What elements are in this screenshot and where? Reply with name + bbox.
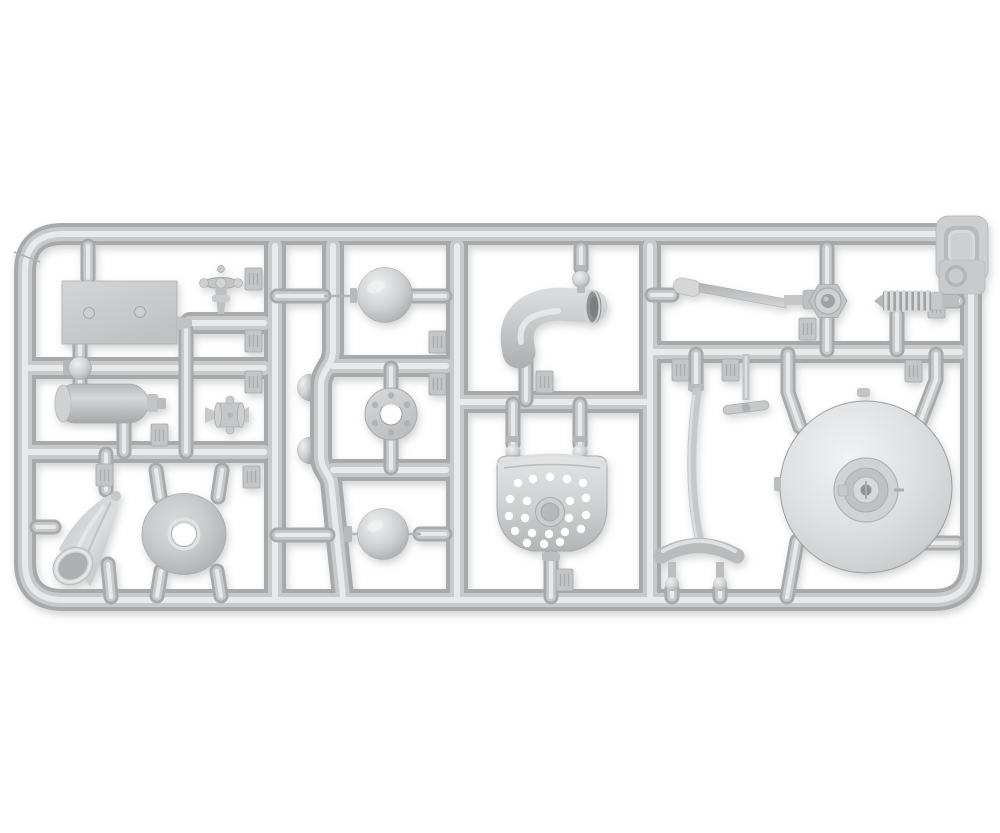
rivet-head: [84, 308, 95, 319]
cone-funnel-disc: [142, 494, 226, 575]
rectangular-mounting-plate: [62, 281, 192, 344]
handwheel-hub: [216, 278, 226, 288]
corner-lamp-housing: [936, 216, 988, 294]
photo-stage: [0, 0, 1000, 833]
bolted-pipe-flange-ring: [365, 388, 417, 440]
sprue-photo: [0, 0, 1000, 833]
hub-latch: [838, 485, 848, 496]
rivet-head: [135, 307, 146, 318]
housing-d-recess: [951, 233, 972, 261]
muffler-end-rim: [55, 385, 71, 422]
muffler-nozzle: [157, 398, 166, 409]
